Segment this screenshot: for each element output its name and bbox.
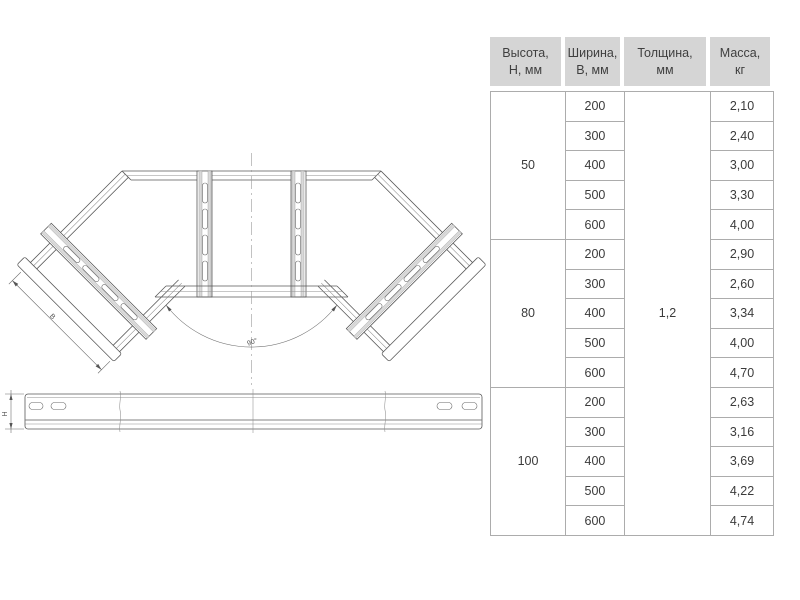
width-cell: 300: [566, 269, 625, 299]
width-dimension-label: B: [48, 313, 56, 321]
width-cell: 500: [566, 180, 625, 210]
height-dimension-label: H: [2, 411, 9, 416]
mass-cell: 3,00: [711, 151, 774, 181]
table-header: Высота, Н, мм Ширина, В, мм Толщина, мм …: [490, 37, 774, 86]
rung: [291, 171, 306, 297]
spec-table-body: 502001,22,103002,404003,005003,306004,00…: [490, 91, 774, 536]
side-view: H: [2, 389, 482, 433]
header-mass: Масса, кг: [710, 37, 770, 86]
mass-cell: 2,10: [711, 92, 774, 122]
width-cell: 200: [566, 92, 625, 122]
width-cell: 600: [566, 506, 625, 536]
width-cell: 200: [566, 239, 625, 269]
angle-label: 90°: [246, 336, 259, 347]
width-cell: 300: [566, 417, 625, 447]
mass-cell: 4,00: [711, 328, 774, 358]
mass-cell: 4,70: [711, 358, 774, 388]
width-cell: 600: [566, 358, 625, 388]
header-width: Ширина, В, мм: [565, 37, 620, 86]
mass-cell: 4,22: [711, 476, 774, 506]
thickness-cell: 1,2: [624, 92, 710, 536]
mass-cell: 3,69: [711, 447, 774, 477]
width-cell: 400: [566, 151, 625, 181]
mass-cell: 2,90: [711, 239, 774, 269]
width-cell: 200: [566, 387, 625, 417]
mass-cell: 2,63: [711, 387, 774, 417]
mass-cell: 2,60: [711, 269, 774, 299]
spec-table: Высота, Н, мм Ширина, В, мм Толщина, мм …: [490, 37, 774, 536]
height-cell: 80: [491, 239, 566, 387]
width-cell: 400: [566, 447, 625, 477]
mass-cell: 4,74: [711, 506, 774, 536]
header-height: Высота, Н, мм: [490, 37, 561, 86]
table-row: 502001,22,10: [491, 92, 774, 122]
plan-view: 90° B: [9, 153, 490, 385]
width-cell: 300: [566, 121, 625, 151]
mass-cell: 4,00: [711, 210, 774, 240]
width-cell: 500: [566, 476, 625, 506]
width-cell: 400: [566, 299, 625, 329]
rung: [197, 171, 212, 297]
height-cell: 50: [491, 92, 566, 240]
width-cell: 500: [566, 328, 625, 358]
mass-cell: 3,30: [711, 180, 774, 210]
height-cell: 100: [491, 387, 566, 535]
header-thickness: Толщина, мм: [624, 37, 706, 86]
mass-cell: 3,34: [711, 299, 774, 329]
mass-cell: 2,40: [711, 121, 774, 151]
width-cell: 600: [566, 210, 625, 240]
mass-cell: 3,16: [711, 417, 774, 447]
